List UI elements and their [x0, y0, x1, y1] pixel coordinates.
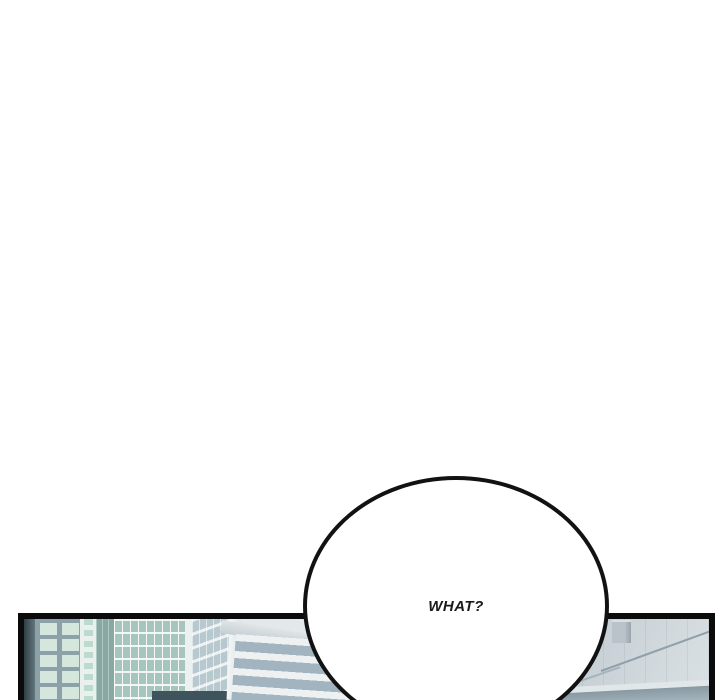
- comic-page: WHAT?: [0, 0, 720, 700]
- glass-tower-shaded-face: [96, 619, 114, 700]
- building-window-facade: [35, 619, 82, 700]
- glass-tower: [114, 619, 185, 700]
- speech-bubble: WHAT?: [303, 476, 609, 700]
- rooftop-vent: [612, 620, 631, 643]
- speech-bubble-text: WHAT?: [428, 599, 484, 614]
- building-white-column: [80, 619, 97, 700]
- white-column-windows: [84, 619, 93, 700]
